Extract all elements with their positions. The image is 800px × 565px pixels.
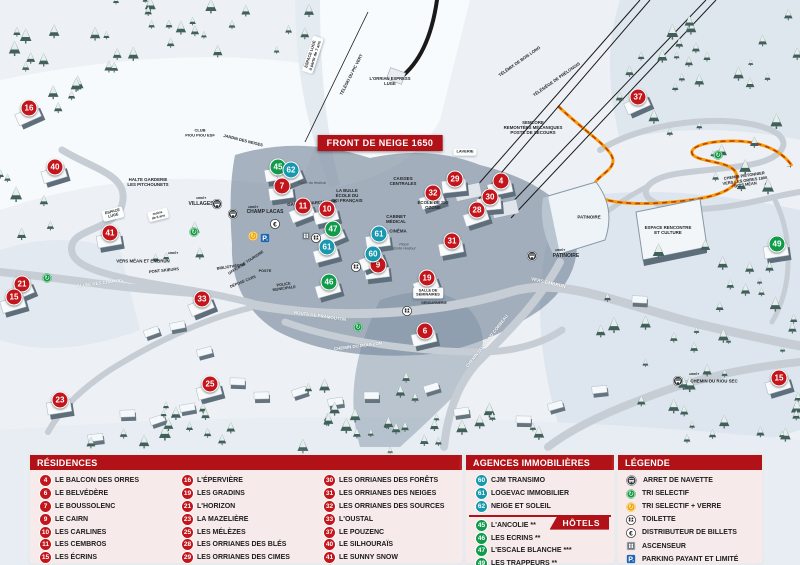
map-marker-49: 49 [769,236,786,253]
svg-text:€: € [629,530,633,537]
map-marker-41: 41 [102,225,119,242]
legende-title: LÉGENDE [625,458,670,468]
elevator-icon [301,231,311,241]
legend-item: ↻TRI SELECTIF + VERRE [621,500,759,513]
list-item-62: 62NEIGE ET SOLEIL [469,500,611,513]
agences-header: AGENCES IMMOBILIÈRES [466,455,614,470]
map-marker-6: 6 [417,323,434,340]
bus-icon [212,199,223,210]
list-item-19: 19LES GRADINS [175,487,317,500]
map-label: SALLE DESÉMINAIRES [413,288,443,299]
list-item-47: 47L'ESCALE BLANCHE *** [469,544,611,557]
resort-map: ESPACE LUGEà partir de 7 ansTÉLÉSKI DU P… [0,0,800,565]
bus-icon [228,209,239,220]
list-item-10: 10LES CARLINES [33,526,175,539]
item-label: LOGEVAC IMMOBILIER [491,490,569,497]
parking-icon: P. [626,554,636,564]
svg-text:↻: ↻ [715,152,720,159]
list-item-60: 60CJM TRANSIMO [469,474,611,487]
map-marker-25: 25 [202,376,219,393]
residences-title: RÉSIDENCES [37,458,98,468]
item-number-badge: 16 [182,475,193,486]
map-label: CABINETMÉDICAL [386,214,406,224]
list-item-33: 33L'OUSTAL [317,513,459,526]
map-label: ESPACE RENCONTREET CULTURE [645,225,692,235]
legende-list: ARRET DE NAVETTE↻TRI SELECTIF↻TRI SELECT… [618,470,762,565]
item-number-badge: 41 [324,552,335,563]
svg-text:↻: ↻ [628,491,633,498]
item-number-badge: 47 [476,545,487,556]
legend-label: ASCENSEUR [642,543,686,550]
item-number-badge: 49 [476,558,487,565]
map-marker-46: 46 [321,274,338,291]
toilet-icon [311,233,321,243]
item-number-badge: 10 [40,527,51,538]
item-label: L'HORIZON [197,503,235,510]
list-item-30: 30LES ORRIANES DES FORÊTS [317,474,459,487]
item-label: LE BALCON DES ORRES [55,477,139,484]
item-label: LE SUNNY SNOW [339,554,398,561]
recycle-icon: ↻ [42,273,52,283]
item-number-badge: 37 [324,527,335,538]
list-item-40: 40LE SILHOURAÏS [317,538,459,551]
legend-label: TOILETTE [642,516,676,523]
item-number-badge: 32 [324,501,335,512]
list-item-6: 6LE BELVÉDÈRE [33,487,175,500]
item-number-badge: 33 [324,514,335,525]
item-label: LES TRAPPEURS ** [491,560,557,565]
item-number-badge: 4 [40,475,51,486]
item-label: L'OUSTAL [339,516,373,523]
map-marker-4: 4 [493,173,510,190]
item-number-badge: 46 [476,533,487,544]
item-label: LES CARLINES [55,529,106,536]
map-label: CHEMIN DU RIOU SEC [690,378,737,383]
item-number-badge: 61 [476,488,487,499]
item-label: L'ESCALE BLANCHE *** [491,547,572,554]
legend-label: TRI SELECTIF + VERRE [642,503,721,510]
item-number-badge: 21 [182,501,193,512]
map-label: SEMLOREREMONTÉES MÉCANIQUESPOSTE DE SECO… [504,120,563,136]
toilet-icon [626,515,636,525]
list-item-32: 32LES ORRIANES DES SOURCES [317,500,459,513]
map-marker-15: 15 [771,370,788,387]
item-label: LE BOUSSOLENC [55,503,115,510]
residences-column: 30LES ORRIANES DES FORÊTS31LES ORRIANES … [317,474,459,564]
legend-item: ASCENSEUR [621,539,759,552]
list-item-37: 37LE POUZENC [317,526,459,539]
toilet-icon [402,306,412,316]
hotels-header: HÔTELS [550,516,609,530]
item-label: LES ORRIANES DES FORÊTS [339,477,438,484]
legend-item: P.PARKING PAYANT ET LIMITÉ [621,553,759,565]
map-label: POSTE [259,269,272,273]
recycle-icon: ↻ [626,489,636,499]
svg-text:€: € [273,221,277,228]
item-label: NEIGE ET SOLEIL [491,503,551,510]
bus-icon [527,251,538,262]
hotels-section: HÔTELS 45L'ANCOLIE **46LES ECRINS **47L'… [469,515,611,565]
map-marker-29: 29 [447,171,464,188]
residences-column: 4LE BALCON DES ORRES6LE BELVÉDÈRE7LE BOU… [33,474,175,564]
list-item-31: 31LES ORRIANES DES NEIGES [317,487,459,500]
item-label: LES CEMBROS [55,541,106,548]
map-label: LAVERIE [453,149,476,156]
map-marker-16: 16 [21,100,38,117]
item-label: LES ORRIANES DES CIMES [197,554,290,561]
residences-column: 16L'ÉPERVIÈRE19LES GRADINS21L'HORIZON23L… [175,474,317,564]
item-label: LES ÉCRINS [55,554,97,561]
map-marker-61: 61 [371,226,388,243]
map-marker-7: 7 [274,178,291,195]
list-item-11: 11LES CEMBROS [33,538,175,551]
residences-list: 4LE BALCON DES ORRES6LE BELVÉDÈRE7LE BOU… [30,470,462,565]
item-label: LES ORRIANES DES SOURCES [339,503,444,510]
item-label: LES ECRINS ** [491,535,540,542]
euro-icon: € [270,219,280,229]
residences-header: RÉSIDENCES [30,455,462,470]
legend-label: PARKING PAYANT ET LIMITÉ [642,556,738,563]
recycle-icon: ↻ [713,150,723,160]
item-number-badge: 15 [40,552,51,563]
map-marker-28: 28 [469,202,486,219]
svg-text:P.: P. [628,556,634,564]
map-marker-33: 33 [194,291,211,308]
list-item-46: 46LES ECRINS ** [469,532,611,545]
map-label: CAISSESCENTRALES [390,176,417,186]
map-marker-31: 31 [444,233,461,250]
list-item-16: 16L'ÉPERVIÈRE [175,474,317,487]
map-marker-15: 15 [6,289,23,306]
agences-title: AGENCES IMMOBILIÈRES [473,458,590,468]
agences-panel: AGENCES IMMOBILIÈRES 60CJM TRANSIMO61LOG… [466,455,614,563]
map-label: Place du festival [298,181,326,185]
item-number-badge: 60 [476,475,487,486]
item-number-badge: 45 [476,520,487,531]
map-marker-23: 23 [52,392,69,409]
svg-text:↻: ↻ [44,275,49,282]
map-marker-47: 47 [325,221,342,238]
map-label: ARRÊT [689,373,699,377]
item-label: LES ORRIANES DES BLÉS [197,541,286,548]
toilet-icon [351,262,361,272]
map-label: CLUBPIOU PIOU ESF [185,128,215,137]
svg-text:↻: ↻ [628,504,633,511]
map-marker-40: 40 [47,159,64,176]
map-label: PlaceÉmile Hodoul [393,243,416,252]
map-marker-10: 10 [319,201,336,218]
item-label: LE SILHOURAÏS [339,541,393,548]
item-label: L'ÉPERVIÈRE [197,477,243,484]
recycle-glass-icon: ↻ [248,231,258,241]
legend-label: TRI SELECTIF [642,490,689,497]
svg-text:↻: ↻ [355,324,360,331]
item-number-badge: 30 [324,475,335,486]
euro-icon: € [626,528,636,538]
map-marker-61: 61 [319,239,336,256]
item-number-badge: 11 [40,539,51,550]
list-item-49: 49LES TRAPPEURS ** [469,557,611,565]
recycle-glass-icon: ↻ [626,502,636,512]
parking-icon: P. [260,233,270,243]
item-number-badge: 31 [324,488,335,499]
map-label: CHAMP LACAS [247,210,284,216]
map-marker-32: 32 [425,185,442,202]
legend-label: DISTRIBUTEUR DE BILLETS [642,529,737,536]
map-marker-30: 30 [482,189,499,206]
list-item-61: 61LOGEVAC IMMOBILIER [469,487,611,500]
item-label: L'ANCOLIE ** [491,522,536,529]
bus-icon [626,475,637,486]
item-label: CJM TRANSIMO [491,477,545,484]
svg-text:↻: ↻ [191,229,196,236]
map-label: VILLAGES [188,202,213,208]
legend-item: TOILETTE [621,513,759,526]
item-number-badge: 6 [40,488,51,499]
legende-panel: LÉGENDE ARRET DE NAVETTE↻TRI SELECTIF↻TR… [618,455,762,563]
bus-icon [673,376,684,387]
map-label: PATINOIRE [577,214,600,219]
map-label: HALTE GARDERIELES PITCHOUNETS [127,177,168,187]
list-item-7: 7LE BOUSSOLENC [33,500,175,513]
map-label: ARRÊT [168,252,178,256]
item-label: LES GRADINS [197,490,245,497]
recycle-icon: ↻ [353,322,363,332]
list-item-4: 4LE BALCON DES ORRES [33,474,175,487]
list-item-15: 15LES ÉCRINS [33,551,175,564]
item-number-badge: 9 [40,514,51,525]
list-item-21: 21L'HORIZON [175,500,317,513]
map-marker-60: 60 [365,246,382,263]
list-item-28: 28LES ORRIANES DES BLÉS [175,538,317,551]
item-label: LA MAZELIÈRE [197,516,248,523]
front-de-neige-banner: FRONT DE NEIGE 1650 [318,135,443,151]
svg-text:↻: ↻ [250,233,255,240]
item-label: LES ORRIANES DES NEIGES [339,490,436,497]
map-label: PATINOIRE [553,254,579,260]
item-label: LES MÉLÈZES [197,529,246,536]
map-marker-19: 19 [419,270,436,287]
item-label: LE BELVÉDÈRE [55,490,108,497]
legend-label: ARRET DE NAVETTE [643,477,713,484]
item-label: LE CAIRN [55,516,88,523]
item-number-badge: 62 [476,501,487,512]
list-item-9: 9LE CAIRN [33,513,175,526]
item-number-badge: 25 [182,527,193,538]
legend-item: €DISTRIBUTEUR DE BILLETS [621,526,759,539]
map-label: → [786,163,793,171]
map-label: VERS MÉAN ET EMBRUN [116,258,169,263]
legende-header: LÉGENDE [618,455,762,470]
item-label: LE POUZENC [339,529,384,536]
item-number-badge: 29 [182,552,193,563]
svg-text:P.: P. [262,235,268,243]
list-item-41: 41LE SUNNY SNOW [317,551,459,564]
list-item-25: 25LES MÉLÈZES [175,526,317,539]
residences-panel: RÉSIDENCES 4LE BALCON DES ORRES6LE BELVÉ… [30,455,462,563]
map-marker-62: 62 [283,162,300,179]
item-number-badge: 19 [182,488,193,499]
item-number-badge: 7 [40,501,51,512]
map-label: CINÉMA [389,228,406,233]
map-marker-11: 11 [295,198,312,215]
recycle-icon: ↻ [189,227,199,237]
agences-list: 60CJM TRANSIMO61LOGEVAC IMMOBILIER62NEIG… [469,474,611,513]
legend-item: ↻TRI SELECTIF [621,487,759,500]
map-label: L'ORRIAN EXPRESSLUGE [369,77,410,87]
list-item-29: 29LES ORRIANES DES CIMES [175,551,317,564]
item-number-badge: 23 [182,514,193,525]
map-marker-37: 37 [630,89,647,106]
item-number-badge: 40 [324,539,335,550]
item-number-badge: 28 [182,539,193,550]
elevator-icon [626,541,636,551]
legend-item: ARRET DE NAVETTE [621,474,759,487]
map-label: GENDARMERIE [421,301,446,305]
list-item-23: 23LA MAZELIÈRE [175,513,317,526]
